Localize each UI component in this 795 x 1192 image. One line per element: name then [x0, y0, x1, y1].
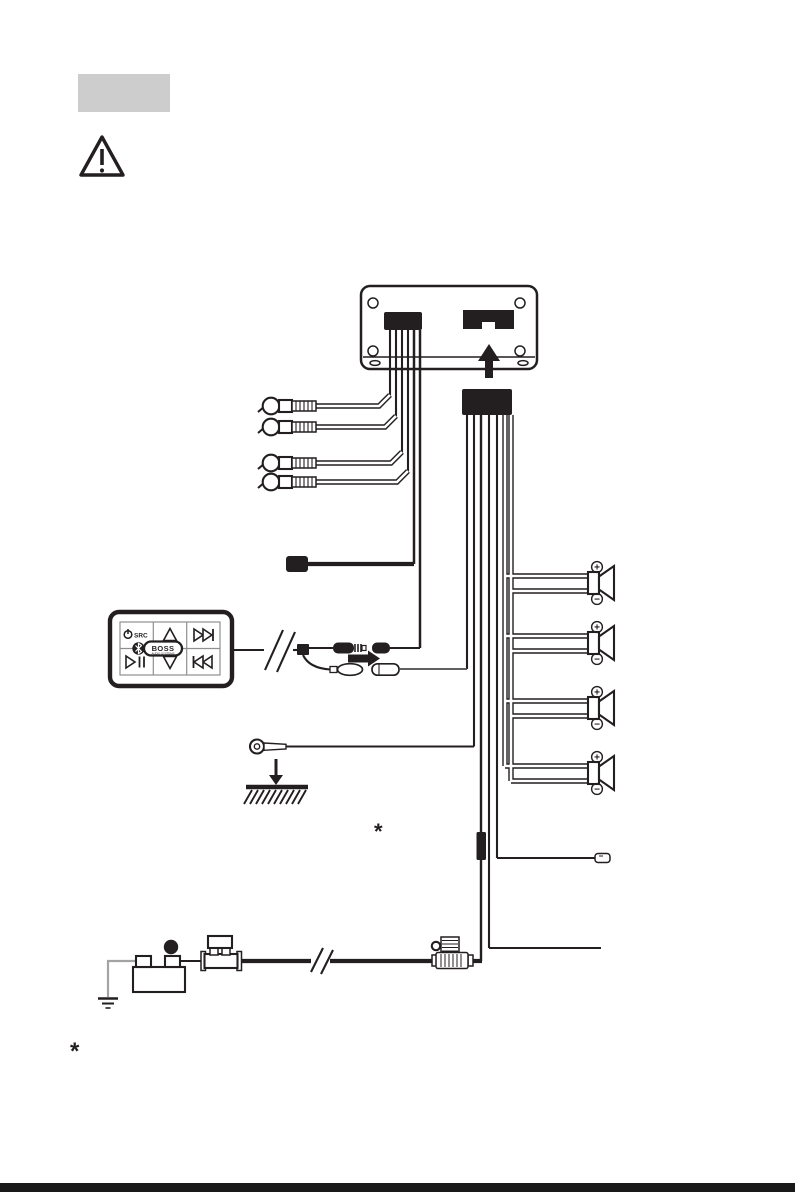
speaker-positive-label: +	[594, 563, 600, 574]
source-label: SRC	[134, 633, 148, 640]
fuse-holder	[201, 936, 242, 971]
speaker-negative-label: −	[594, 720, 600, 731]
inline-fuse	[477, 832, 487, 860]
agu-fuse-holder	[432, 937, 473, 969]
aux-jack-male	[372, 643, 390, 654]
battery-section: +	[98, 936, 482, 1008]
speaker-negative-label: −	[594, 655, 600, 666]
wiring-harness-connector	[462, 389, 512, 415]
speaker-negative-label: −	[594, 785, 600, 796]
head-unit-wire-bundle	[390, 330, 420, 648]
manual-page: + − + − + − + −	[0, 0, 795, 1192]
speaker: + −	[588, 752, 614, 796]
rca-plug	[258, 398, 316, 415]
remote-output-lead	[303, 651, 467, 676]
harness-wires	[467, 415, 601, 961]
rca-plug	[258, 455, 316, 472]
chassis-ground-icon	[244, 787, 308, 804]
speaker-positive-label: +	[594, 623, 600, 634]
page-footnote-marker: *	[70, 1038, 80, 1065]
battery-ground-icon	[98, 999, 118, 1009]
head-unit-harness-socket	[384, 312, 422, 330]
power-wire-break-icon	[311, 948, 333, 974]
bullet-connector-male	[330, 664, 363, 676]
diagram-footnote-marker: *	[374, 819, 383, 844]
battery-positive-label: +	[168, 942, 175, 954]
battery-positive-terminal	[165, 956, 180, 967]
page-bottom-edge	[0, 1183, 795, 1192]
cable-break-icon	[265, 630, 295, 672]
head-unit-antenna-socket	[463, 310, 514, 329]
speaker: + −	[588, 622, 614, 666]
remote-control: SRC BOSS AUDIO SYSTEMS	[110, 612, 232, 686]
speaker-positive-label: +	[594, 688, 600, 699]
bullet-connector-female	[372, 664, 399, 675]
battery-negative-terminal	[136, 956, 151, 967]
boss-logo: BOSS AUDIO SYSTEMS	[144, 642, 182, 656]
junction-block	[297, 644, 309, 655]
ground-lead	[250, 740, 474, 754]
head-unit	[361, 286, 537, 369]
rca-plug	[258, 474, 316, 491]
speaker-wires	[505, 415, 588, 781]
remote-cable	[232, 630, 420, 672]
speaker-negative-label: −	[594, 595, 600, 606]
rca-wires	[316, 395, 408, 482]
speaker: + −	[588, 687, 614, 731]
heading-placeholder-block	[78, 74, 170, 112]
speaker-positive-label: +	[594, 753, 600, 764]
speaker: + −	[588, 562, 614, 606]
antenna-plug	[286, 556, 414, 572]
warning-icon	[81, 137, 123, 175]
spade-terminal	[595, 854, 610, 863]
bluetooth-icon	[132, 642, 144, 654]
rca-plug	[258, 419, 316, 436]
battery: +	[133, 940, 185, 992]
aux-jack-female	[333, 643, 366, 654]
ground-arrow-icon	[269, 759, 283, 785]
ring-terminal-icon	[250, 740, 264, 754]
brand-subtitle-label: AUDIO SYSTEMS	[151, 651, 174, 655]
